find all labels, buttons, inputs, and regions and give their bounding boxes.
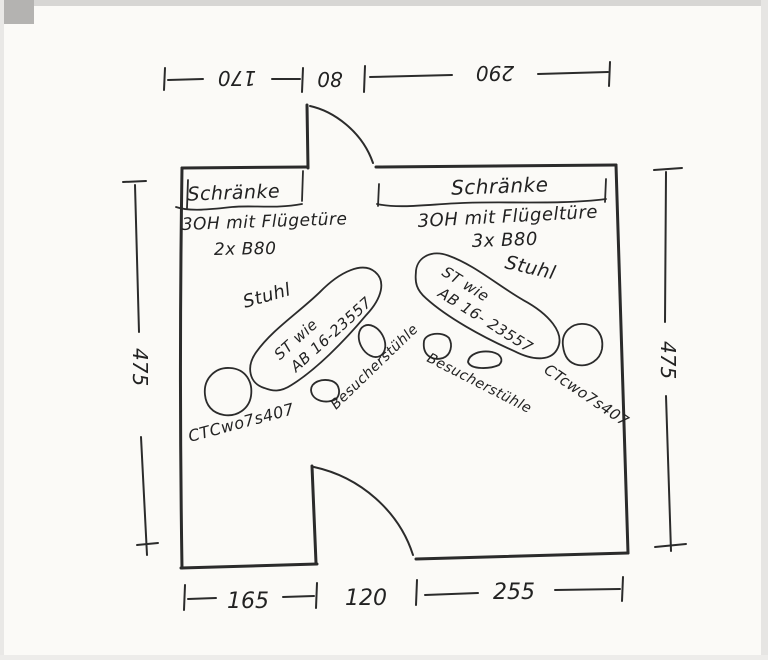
dim-bottom-tick-4 bbox=[622, 577, 623, 601]
label-stuhl-left: Stuhl bbox=[241, 279, 294, 313]
cabinet-right-desc: 3OH mit Flügeltüre bbox=[417, 202, 598, 232]
label-code-right: CTcwo7s407 bbox=[541, 360, 633, 430]
dim-top-line-4 bbox=[538, 72, 608, 74]
dim-bottom-line-3 bbox=[425, 593, 478, 595]
dim-top-value-3: 290 bbox=[476, 61, 514, 85]
dim-top-value-2: 80 bbox=[317, 67, 342, 91]
dim-left-tick-top bbox=[123, 181, 146, 182]
dimension-bottom: 165 120 255 bbox=[184, 577, 623, 614]
cabinet-right-title: Schränke bbox=[451, 172, 549, 199]
door-bottom-leaf bbox=[312, 466, 316, 563]
dim-bottom-value-1: 165 bbox=[227, 589, 269, 614]
door-top-leaf bbox=[307, 105, 308, 168]
dim-bottom-line-4 bbox=[555, 589, 620, 590]
door-bottom bbox=[312, 466, 413, 563]
wall-right bbox=[616, 165, 628, 553]
dim-top-tick-3 bbox=[364, 66, 365, 92]
dim-right-line-1 bbox=[665, 172, 666, 322]
dim-left-line-1 bbox=[135, 185, 139, 332]
label-stuhl-right: Stuhl bbox=[503, 251, 558, 284]
door-top-swing-arc bbox=[310, 106, 373, 163]
door-top bbox=[307, 105, 373, 168]
label-code-left: CTCwo7s407 bbox=[186, 399, 297, 446]
round-chair-left bbox=[205, 368, 252, 415]
wall-top-left bbox=[182, 167, 307, 168]
dim-right-value: 475 bbox=[656, 341, 680, 379]
dim-right-line-2 bbox=[666, 396, 671, 551]
label-besucherstuehle-right: Besucherstühle bbox=[424, 350, 534, 417]
cabinet-right-side-a bbox=[378, 184, 379, 206]
dim-bottom-value-2: 120 bbox=[345, 586, 387, 611]
dim-bottom-tick-2 bbox=[316, 583, 317, 608]
dim-top-line-3 bbox=[370, 75, 452, 77]
cabinet-left-title: Schränke bbox=[187, 180, 280, 205]
round-chair-right bbox=[563, 324, 603, 365]
cabinet-left-side-b bbox=[302, 171, 303, 201]
cabinet-right-qty: 3x B80 bbox=[471, 229, 538, 252]
scan-top-band bbox=[0, 0, 768, 6]
dim-top-tick-2 bbox=[302, 68, 303, 92]
cabinet-left: Schränke 3OH mit Flügetüre 2x B80 bbox=[176, 171, 348, 260]
wall-top-right bbox=[376, 165, 616, 167]
floor-plan-sketch: Schränke 3OH mit Flügetüre 2x B80 Schrän… bbox=[0, 0, 768, 660]
dimension-left: 475 bbox=[123, 181, 158, 555]
dim-left-value: 475 bbox=[128, 348, 152, 386]
cabinet-left-desc: 3OH mit Flügetüre bbox=[181, 209, 347, 235]
dim-bottom-tick-3 bbox=[416, 580, 417, 605]
scan-right-band bbox=[761, 0, 768, 660]
dim-top-tick-4 bbox=[609, 62, 610, 86]
wall-bottom-right bbox=[416, 553, 628, 559]
dim-left-tick-bottom bbox=[137, 543, 158, 545]
cabinet-left-qty: 2x B80 bbox=[214, 239, 277, 260]
dim-bottom-line-2 bbox=[283, 596, 314, 597]
scanned-floorplan-page: Schränke 3OH mit Flügetüre 2x B80 Schrän… bbox=[0, 0, 768, 660]
wall-bottom-left bbox=[181, 564, 317, 568]
dim-left-line-2 bbox=[141, 437, 147, 555]
visitor-chair-right-b bbox=[468, 351, 501, 368]
cabinet-right: Schränke 3OH mit Flügeltüre 3x B80 bbox=[377, 172, 606, 252]
door-bottom-swing-arc bbox=[314, 467, 413, 555]
dim-bottom-value-3: 255 bbox=[493, 580, 535, 605]
dimension-right: 475 bbox=[654, 168, 686, 551]
scan-left-band bbox=[0, 0, 4, 660]
dim-bottom-line-1 bbox=[188, 598, 216, 599]
dim-top-tick-1 bbox=[164, 68, 165, 90]
scan-corner-mark bbox=[0, 0, 34, 24]
dimension-top: 170 80 290 bbox=[164, 61, 610, 92]
dim-right-tick-top bbox=[654, 168, 682, 170]
dim-top-value-1: 170 bbox=[218, 66, 256, 90]
dim-bottom-tick-1 bbox=[184, 585, 185, 610]
scan-bottom-band bbox=[0, 655, 768, 660]
dim-top-line-1 bbox=[168, 79, 203, 80]
scan-edge-artifacts bbox=[0, 0, 768, 660]
